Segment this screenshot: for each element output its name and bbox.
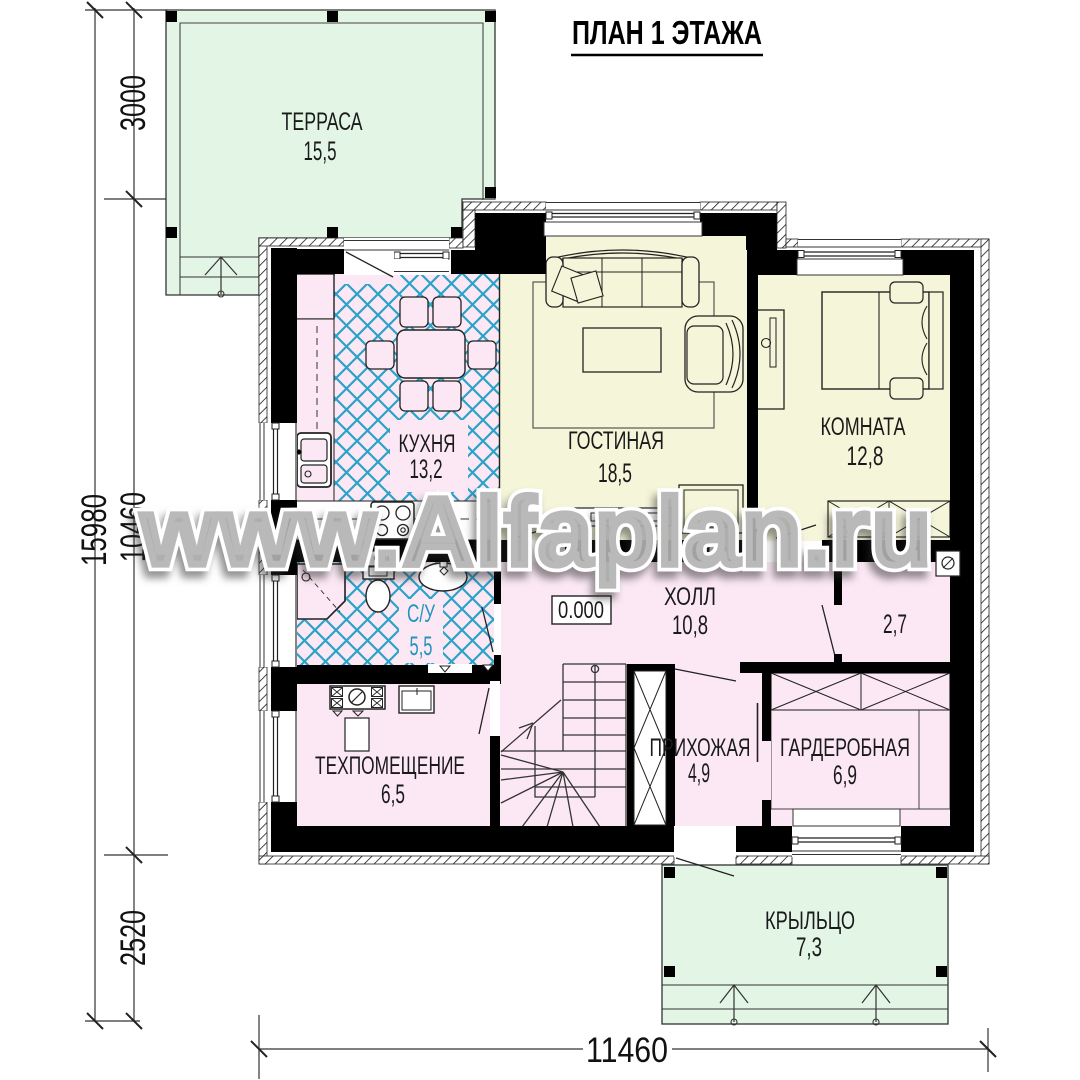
svg-text:15,5: 15,5	[304, 136, 337, 166]
svg-text:6,9: 6,9	[833, 760, 857, 790]
svg-text:0.000: 0.000	[558, 597, 604, 624]
svg-text:ТЕХПОМЕЩЕНИЕ: ТЕХПОМЕЩЕНИЕ	[315, 752, 465, 780]
svg-text:ПЛАН 1 ЭТАЖА: ПЛАН 1 ЭТАЖА	[572, 14, 762, 51]
svg-text:12,8: 12,8	[847, 441, 884, 471]
svg-text:ГАРДЕРОБНАЯ: ГАРДЕРОБНАЯ	[780, 734, 910, 762]
svg-text:5,5: 5,5	[410, 631, 433, 661]
svg-text:ГОСТИНАЯ: ГОСТИНАЯ	[568, 427, 664, 455]
svg-text:15980: 15980	[75, 494, 114, 566]
svg-text:www.Alfaplan.ru: www.Alfaplan.ru	[138, 476, 932, 588]
svg-text:КРЫЛЬЦО: КРЫЛЬЦО	[765, 907, 855, 935]
svg-text:КОМНАТА: КОМНАТА	[821, 413, 906, 441]
svg-text:4,9: 4,9	[688, 758, 710, 788]
svg-text:7,3: 7,3	[796, 932, 822, 962]
svg-text:6,5: 6,5	[381, 779, 405, 809]
svg-text:3000: 3000	[114, 75, 153, 131]
svg-text:С/У: С/У	[407, 600, 435, 628]
svg-text:2,7: 2,7	[883, 609, 907, 639]
svg-text:11460: 11460	[586, 1031, 668, 1070]
svg-text:10,8: 10,8	[672, 610, 708, 640]
svg-text:2520: 2520	[114, 910, 153, 966]
svg-text:ТЕРРАСА: ТЕРРАСА	[282, 108, 363, 136]
